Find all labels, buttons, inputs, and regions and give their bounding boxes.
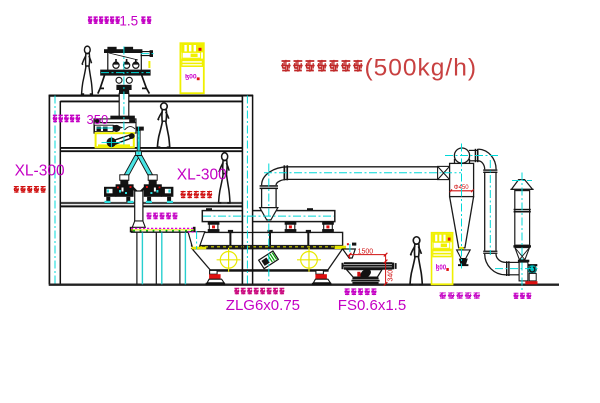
svg-text:FS0.6x1.5: FS0.6x1.5 xyxy=(338,297,406,314)
svg-text:XL-300: XL-300 xyxy=(177,166,227,183)
svg-text:340: 340 xyxy=(388,270,395,282)
svg-text:1500: 1500 xyxy=(358,249,374,256)
svg-text:1.5: 1.5 xyxy=(119,13,138,28)
svg-text:ZLG6x0.75: ZLG6x0.75 xyxy=(226,297,300,314)
svg-text:(500kg/h): (500kg/h) xyxy=(365,55,478,82)
svg-text:XL-300: XL-300 xyxy=(15,162,65,179)
svg-text:350: 350 xyxy=(87,112,109,127)
